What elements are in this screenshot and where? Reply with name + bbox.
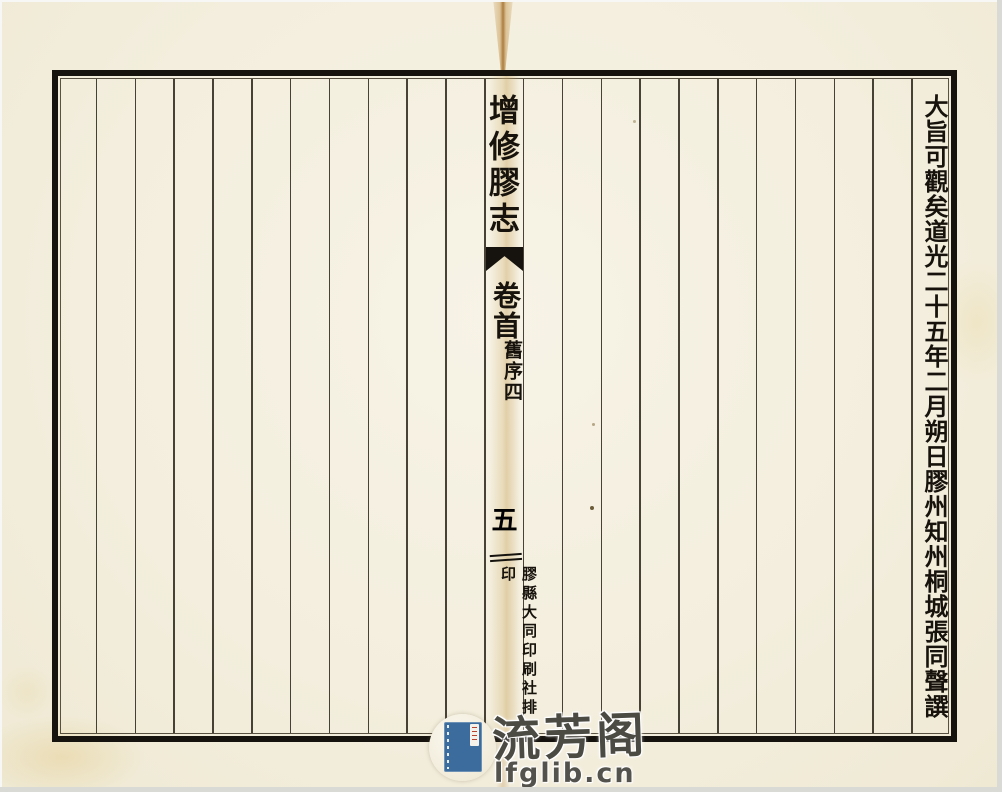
column-line	[562, 79, 564, 733]
column-line	[639, 79, 641, 733]
column-line	[678, 79, 680, 733]
book-title-label-icon	[470, 724, 479, 746]
watermark-site-url: lfglib.cn	[494, 758, 636, 789]
column-line	[834, 79, 836, 733]
section-label: 舊序四	[498, 340, 525, 410]
column-line	[212, 79, 214, 733]
column-line	[445, 79, 447, 733]
scan-edge	[997, 0, 1002, 792]
divider-mark-icon	[490, 553, 523, 565]
column-line	[872, 79, 874, 733]
book-stitching-icon	[447, 725, 449, 769]
book-scan-page: 增修膠志 卷首 舊序四 五 膠縣大同印刷社排印 大旨可觀矣道光二十五年二月朔日膠…	[0, 0, 1002, 792]
fishtail-icon	[486, 247, 523, 271]
column-line	[717, 79, 719, 733]
column-line	[795, 79, 797, 733]
book-title: 增修膠志	[485, 86, 524, 246]
paper: 增修膠志 卷首 舊序四 五 膠縣大同印刷社排印 大旨可觀矣道光二十五年二月朔日膠…	[2, 2, 997, 787]
fold-crease-top	[488, 2, 518, 70]
column-line	[290, 79, 292, 733]
spine-column: 增修膠志 卷首 舊序四 五 膠縣大同印刷社排印	[485, 76, 524, 736]
column-line	[406, 79, 408, 733]
column-line	[329, 79, 331, 733]
scan-edge	[0, 787, 1002, 792]
watermark: 流芳阁 lfglib.cn	[426, 700, 666, 794]
preface-text-column: 大旨可觀矣道光二十五年二月朔日膠州知州桐城張同聲譔	[912, 84, 951, 729]
column-line	[96, 79, 98, 733]
volume-label: 卷首	[485, 276, 524, 346]
column-line	[601, 79, 603, 733]
column-line	[135, 79, 137, 733]
column-line	[251, 79, 253, 733]
column-line	[368, 79, 370, 733]
column-line	[173, 79, 175, 733]
column-line	[756, 79, 758, 733]
page-number: 五	[485, 500, 524, 537]
book-logo-icon	[444, 722, 482, 772]
page-frame: 增修膠志 卷首 舊序四 五 膠縣大同印刷社排印 大旨可觀矣道光二十五年二月朔日膠…	[52, 70, 957, 742]
watermark-logo-badge	[429, 714, 496, 781]
